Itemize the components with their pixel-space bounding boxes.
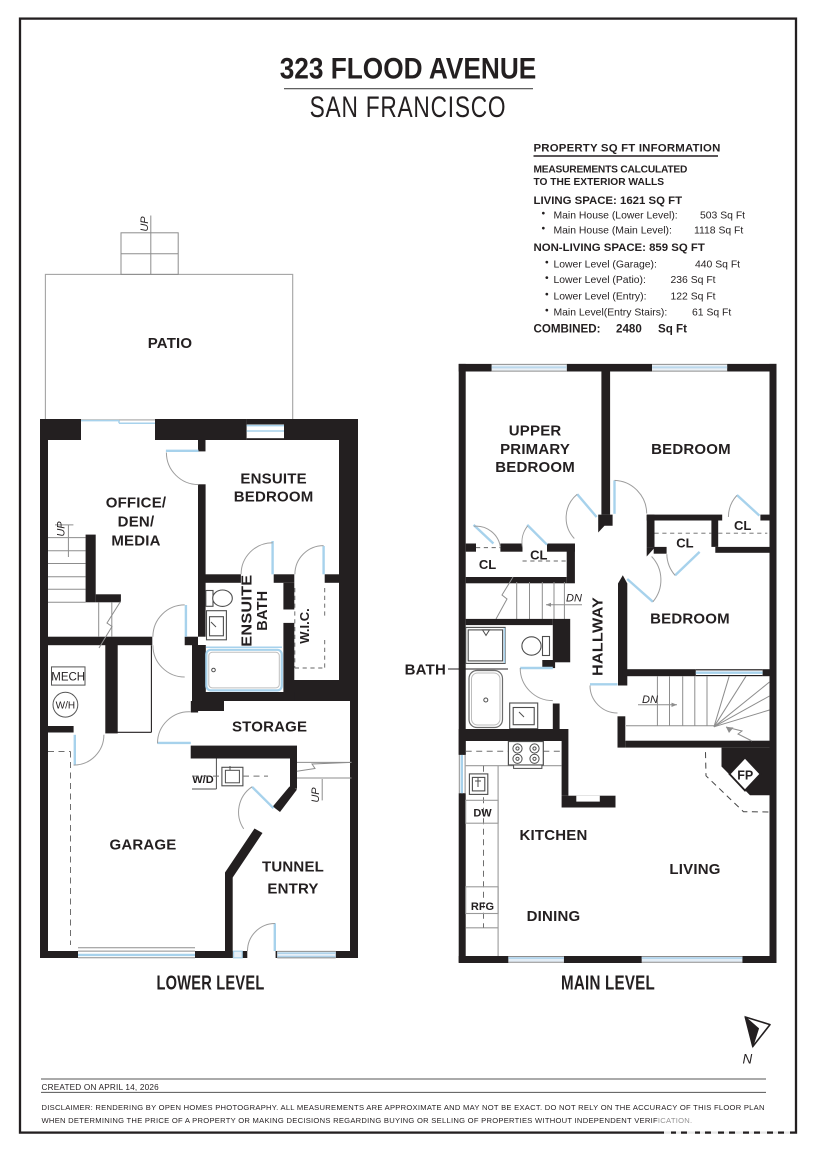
- svg-text:TO THE EXTERIOR WALLS: TO THE EXTERIOR WALLS: [534, 177, 665, 188]
- svg-text:BATH: BATH: [405, 662, 446, 679]
- svg-text:CREATED ON APRIL 14, 2026: CREATED ON APRIL 14, 2026: [42, 1083, 160, 1092]
- svg-text:W.I.C.: W.I.C.: [297, 608, 312, 643]
- svg-text:UPPER: UPPER: [509, 422, 562, 439]
- svg-text:ENSUITE: ENSUITE: [240, 471, 306, 488]
- svg-text:DEN/: DEN/: [118, 514, 155, 531]
- svg-text:440 Sq Ft: 440 Sq Ft: [695, 260, 740, 271]
- svg-text:FP: FP: [737, 768, 753, 782]
- svg-text:DN: DN: [566, 593, 582, 605]
- svg-text:WHEN DETERMINING THE PRICE OF: WHEN DETERMINING THE PRICE OF A PROPERTY…: [42, 1116, 693, 1125]
- svg-text:DN: DN: [642, 694, 658, 706]
- svg-text:BEDROOM: BEDROOM: [234, 489, 314, 506]
- svg-text:DW: DW: [473, 808, 492, 820]
- svg-text:122 Sq Ft: 122 Sq Ft: [671, 292, 716, 303]
- svg-text:KITCHEN: KITCHEN: [519, 827, 587, 844]
- svg-text:BEDROOM: BEDROOM: [495, 459, 575, 476]
- svg-text:BEDROOM: BEDROOM: [651, 441, 731, 458]
- svg-text:•: •: [545, 290, 549, 301]
- svg-text:Main House (Main Level):: Main House (Main Level):: [554, 226, 672, 237]
- svg-text:1118 Sq Ft: 1118 Sq Ft: [694, 226, 743, 237]
- svg-text:Sq Ft: Sq Ft: [658, 323, 687, 336]
- svg-text:CL: CL: [479, 557, 496, 572]
- svg-text:Main House (Lower Level):: Main House (Lower Level):: [554, 211, 678, 222]
- svg-text:DISCLAIMER: RENDERING BY OPEN: DISCLAIMER: RENDERING BY OPEN HOMES PHOT…: [42, 1103, 765, 1112]
- svg-text:323 FLOOD AVENUE: 323 FLOOD AVENUE: [280, 51, 537, 85]
- svg-text:PATIO: PATIO: [148, 335, 193, 352]
- svg-text:•: •: [545, 273, 549, 284]
- svg-text:ENTRY: ENTRY: [267, 881, 318, 898]
- svg-text:ENSUITE: ENSUITE: [239, 575, 255, 647]
- svg-text:UP: UP: [310, 787, 322, 803]
- svg-text:MEDIA: MEDIA: [111, 533, 160, 550]
- svg-text:LIVING SPACE: 1621 SQ FT: LIVING SPACE: 1621 SQ FT: [534, 195, 683, 207]
- svg-text:Lower Level (Garage):: Lower Level (Garage):: [554, 260, 657, 271]
- svg-text:COMBINED:: COMBINED:: [534, 323, 601, 336]
- svg-text:61 Sq Ft: 61 Sq Ft: [692, 308, 731, 319]
- svg-text:CL: CL: [734, 518, 751, 533]
- svg-text:BATH: BATH: [255, 591, 271, 631]
- svg-text:Lower Level (Entry):: Lower Level (Entry):: [554, 292, 647, 303]
- svg-text:LOWER LEVEL: LOWER LEVEL: [157, 973, 265, 995]
- svg-text:503 Sq Ft: 503 Sq Ft: [700, 211, 745, 222]
- svg-text:BEDROOM: BEDROOM: [650, 611, 730, 628]
- svg-text:•: •: [545, 258, 549, 269]
- svg-text:MEASUREMENTS CALCULATED: MEASUREMENTS CALCULATED: [534, 165, 688, 176]
- svg-text:PRIMARY: PRIMARY: [500, 441, 570, 458]
- svg-text:HALLWAY: HALLWAY: [590, 597, 607, 676]
- svg-text:Main Level(Entry Stairs):: Main Level(Entry Stairs):: [554, 308, 668, 319]
- svg-text:•: •: [542, 209, 546, 220]
- svg-text:NON-LIVING SPACE: 859 SQ FT: NON-LIVING SPACE: 859 SQ FT: [534, 242, 705, 254]
- svg-text:CL: CL: [530, 548, 547, 563]
- svg-text:2480: 2480: [616, 323, 642, 336]
- svg-text:W/H: W/H: [56, 700, 75, 711]
- svg-text:SAN FRANCISCO: SAN FRANCISCO: [310, 90, 507, 124]
- svg-text:RFG: RFG: [471, 901, 494, 913]
- svg-text:STORAGE: STORAGE: [232, 719, 307, 736]
- svg-text:UP: UP: [139, 216, 151, 232]
- svg-text:•: •: [545, 306, 549, 317]
- svg-text:TUNNEL: TUNNEL: [262, 859, 324, 876]
- svg-text:CL: CL: [676, 536, 693, 551]
- svg-text:•: •: [542, 224, 546, 235]
- svg-text:GARAGE: GARAGE: [109, 837, 176, 854]
- svg-text:PROPERTY SQ FT INFORMATION: PROPERTY SQ FT INFORMATION: [534, 143, 721, 155]
- svg-text:OFFICE/: OFFICE/: [106, 495, 167, 512]
- svg-text:MECH: MECH: [51, 672, 85, 684]
- svg-text:MAIN LEVEL: MAIN LEVEL: [561, 973, 655, 995]
- svg-text:Lower Level (Patio):: Lower Level (Patio):: [554, 275, 646, 286]
- svg-text:DINING: DINING: [527, 908, 581, 925]
- svg-text:UP: UP: [56, 521, 68, 537]
- svg-text:N: N: [743, 1052, 753, 1067]
- svg-text:236 Sq Ft: 236 Sq Ft: [671, 275, 716, 286]
- svg-text:LIVING: LIVING: [669, 861, 720, 878]
